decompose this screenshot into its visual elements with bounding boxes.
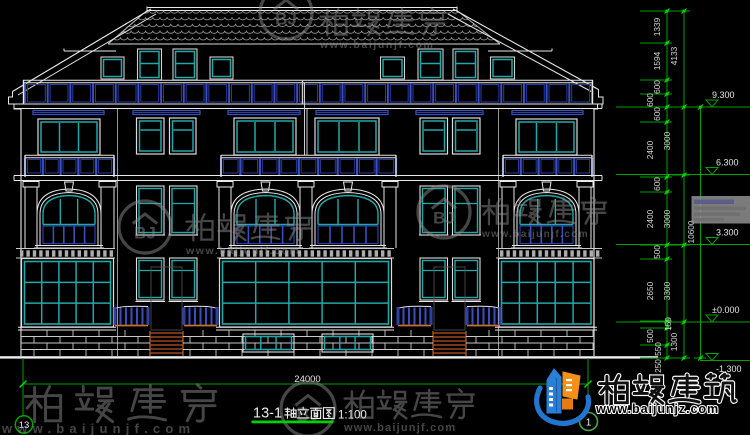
svg-text:600: 600 xyxy=(645,93,655,107)
svg-text:250: 250 xyxy=(653,359,663,373)
svg-text:500: 500 xyxy=(652,245,662,259)
svg-text:BJ: BJ xyxy=(433,208,455,227)
svg-text:www.baijunjf.com: www.baijunjf.com xyxy=(185,245,300,257)
svg-text:600: 600 xyxy=(652,107,662,121)
svg-text:4133: 4133 xyxy=(669,46,679,65)
svg-text:2400: 2400 xyxy=(645,140,655,159)
svg-text:3000: 3000 xyxy=(662,209,672,228)
svg-text:13-1: 13-1 xyxy=(253,406,282,422)
svg-text:3300: 3300 xyxy=(662,281,672,300)
svg-text:BJ: BJ xyxy=(134,223,156,242)
svg-text:2400: 2400 xyxy=(645,209,655,228)
svg-text:9.300: 9.300 xyxy=(712,90,735,100)
svg-text:600: 600 xyxy=(652,177,662,191)
svg-text:±0.000: ±0.000 xyxy=(712,305,739,315)
svg-text:www.baijunjf.com: www.baijunjf.com xyxy=(343,422,456,434)
svg-text:10600: 10600 xyxy=(686,220,696,243)
svg-text:500: 500 xyxy=(645,329,655,343)
svg-text:600: 600 xyxy=(652,80,662,94)
svg-text:3.300: 3.300 xyxy=(716,228,739,238)
svg-text:3000: 3000 xyxy=(662,131,672,150)
svg-text:1339: 1339 xyxy=(652,17,662,36)
svg-text:www.baijunjf.com: www.baijunjf.com xyxy=(481,229,589,240)
svg-text:2650: 2650 xyxy=(645,281,655,300)
svg-text:www.baijunjz.com: www.baijunjz.com xyxy=(595,402,719,416)
svg-text:1:100: 1:100 xyxy=(338,410,367,422)
svg-text:1: 1 xyxy=(586,418,592,429)
svg-text:BJ: BJ xyxy=(275,9,297,28)
svg-text:550: 550 xyxy=(653,342,663,356)
svg-text:6.300: 6.300 xyxy=(716,158,739,168)
svg-text:www.baijunjf.com: www.baijunjf.com xyxy=(1,421,195,435)
svg-text:www.baijunjf.com: www.baijunjf.com xyxy=(319,39,434,51)
svg-text:150: 150 xyxy=(663,317,673,331)
svg-text:1594: 1594 xyxy=(652,51,662,70)
svg-text:-1.300: -1.300 xyxy=(716,364,742,374)
svg-text:1300: 1300 xyxy=(669,332,679,351)
